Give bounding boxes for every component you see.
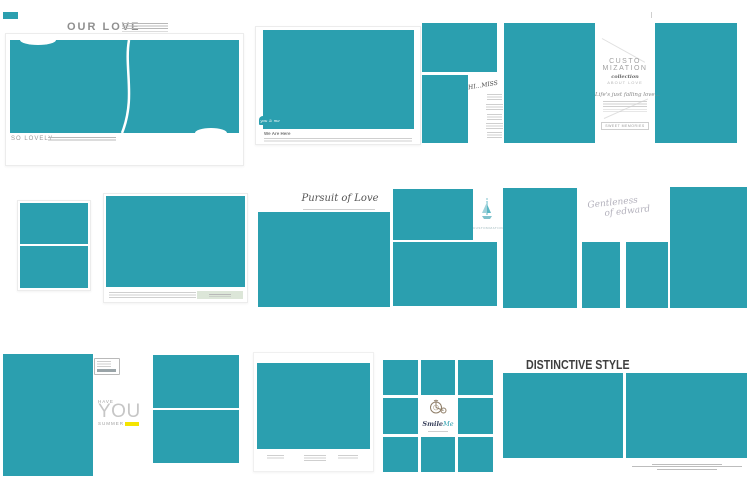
photo-placeholder — [655, 23, 737, 143]
caption-column — [338, 455, 358, 460]
template-two-stack[interactable] — [151, 353, 241, 465]
smile-center-cell: SmileMe — [421, 398, 456, 433]
smile-caption-text — [428, 431, 448, 433]
yellow-highlight — [125, 422, 139, 426]
sailboat-mark: CUSTOMIZATION — [473, 197, 501, 230]
template-summer[interactable]: HAVE YOU SUMMER — [0, 350, 145, 480]
template-gentleness[interactable]: Gentleness of edward — [500, 183, 750, 310]
summer-word-you: YOU — [98, 404, 141, 420]
caption-column — [304, 455, 326, 463]
template-smile-grid[interactable]: SmileMe — [383, 360, 493, 472]
photo-placeholder — [582, 242, 620, 308]
photo-placeholder — [393, 189, 473, 240]
caption-line — [652, 464, 722, 465]
paragraph-text — [603, 101, 647, 114]
stamp-strip — [97, 369, 116, 372]
photo-placeholder — [383, 360, 418, 395]
template-customization[interactable]: CUSTO MIZATION collection ABOUT LOVE Lif… — [500, 10, 750, 150]
caption-line — [657, 469, 717, 470]
photo-caption-title: We Are Here — [264, 131, 291, 136]
our-love-footer: SO LOVELY — [11, 136, 53, 142]
me-word: Me — [443, 420, 454, 428]
photo-placeholder — [383, 437, 418, 472]
sage-label-text — [209, 294, 231, 297]
subtitle-caps: ABOUT LOVE — [595, 80, 655, 85]
photo-placeholder — [421, 360, 456, 395]
curve-divider — [10, 40, 239, 133]
photo-placeholder — [10, 40, 239, 133]
photo-placeholder — [503, 188, 577, 308]
template-we-are-here[interactable]: you & me We Are Here — [255, 26, 421, 145]
photo-placeholder — [421, 437, 456, 472]
photo-placeholder — [383, 398, 418, 433]
photo-placeholder — [257, 363, 370, 449]
photo-placeholder — [106, 196, 245, 287]
badge-label: you & me — [260, 118, 280, 123]
photo-placeholder — [458, 360, 493, 395]
photo-placeholder — [20, 246, 88, 288]
love-script: Life's just falling love... — [595, 92, 655, 98]
photo-placeholder — [422, 23, 497, 72]
summer-word-summer: SUMMER — [98, 421, 124, 426]
template-two-stack-small[interactable] — [17, 200, 91, 291]
pursuit-subtitle-text — [303, 209, 375, 211]
footer-caption-text — [48, 137, 116, 142]
photo-placeholder — [670, 187, 747, 308]
template-large-photo[interactable] — [103, 193, 248, 303]
template-pursuit-of-love[interactable]: Pursuit of Love CUSTOMIZATION — [255, 185, 500, 310]
photo-placeholder — [422, 75, 468, 143]
photo-placeholder — [20, 203, 88, 244]
photo-placeholder — [626, 373, 747, 458]
center-title-block: CUSTO MIZATION collection ABOUT LOVE Lif… — [595, 58, 655, 132]
customization-title-line1: CUSTO — [595, 58, 655, 65]
speech-badge: you & me — [259, 116, 281, 125]
smile-word: Smile — [422, 420, 443, 428]
photo-placeholder — [503, 373, 623, 458]
tick-line — [651, 12, 652, 18]
summer-wordmark: HAVE YOU SUMMER — [98, 399, 141, 426]
hi-miss-title: HI...MISS — [468, 80, 499, 92]
photo-placeholder — [3, 354, 93, 476]
photo-placeholder — [153, 410, 239, 463]
photo-placeholder — [458, 398, 493, 433]
photo-caption-text — [264, 138, 412, 142]
distinctive-title: DISTINCTIVE STYLE — [526, 357, 630, 372]
template-sheet: OUR LOVE SO LOVELY you & me We Are Here … — [0, 0, 750, 500]
photo-placeholder — [458, 437, 493, 472]
sailboat-label: CUSTOMIZATION — [473, 226, 501, 230]
footer-paragraph-text — [109, 292, 196, 298]
caption-line — [632, 466, 742, 467]
pursuit-title: Pursuit of Love — [290, 193, 390, 204]
stamp-box: SWEET MEMORIES — [601, 122, 648, 130]
stamp-box — [94, 358, 120, 375]
caption-column — [267, 455, 284, 460]
penny-farthing-icon — [429, 399, 447, 414]
photo-placeholder — [626, 242, 668, 308]
customization-title-line2: MIZATION — [595, 65, 655, 72]
photo-placeholder — [504, 23, 595, 143]
corner-accent-block — [3, 12, 18, 19]
gentleness-title: Gentleness of edward — [587, 194, 661, 221]
distinctive-caption-text — [620, 462, 750, 471]
photo-placeholder — [393, 242, 497, 306]
photo-placeholder — [263, 30, 414, 129]
photo-placeholder — [153, 355, 239, 408]
template-our-love[interactable]: SO LOVELY — [5, 33, 244, 166]
template-square-captions[interactable] — [253, 352, 374, 472]
template-distinctive-style[interactable]: DISTINCTIVE STYLE — [500, 352, 750, 480]
photo-placeholder — [258, 212, 390, 307]
stamp-text — [97, 361, 111, 367]
sailboat-icon — [480, 197, 494, 221]
sage-label — [197, 291, 243, 299]
template-hi-miss[interactable]: HI...MISS — [420, 20, 508, 145]
